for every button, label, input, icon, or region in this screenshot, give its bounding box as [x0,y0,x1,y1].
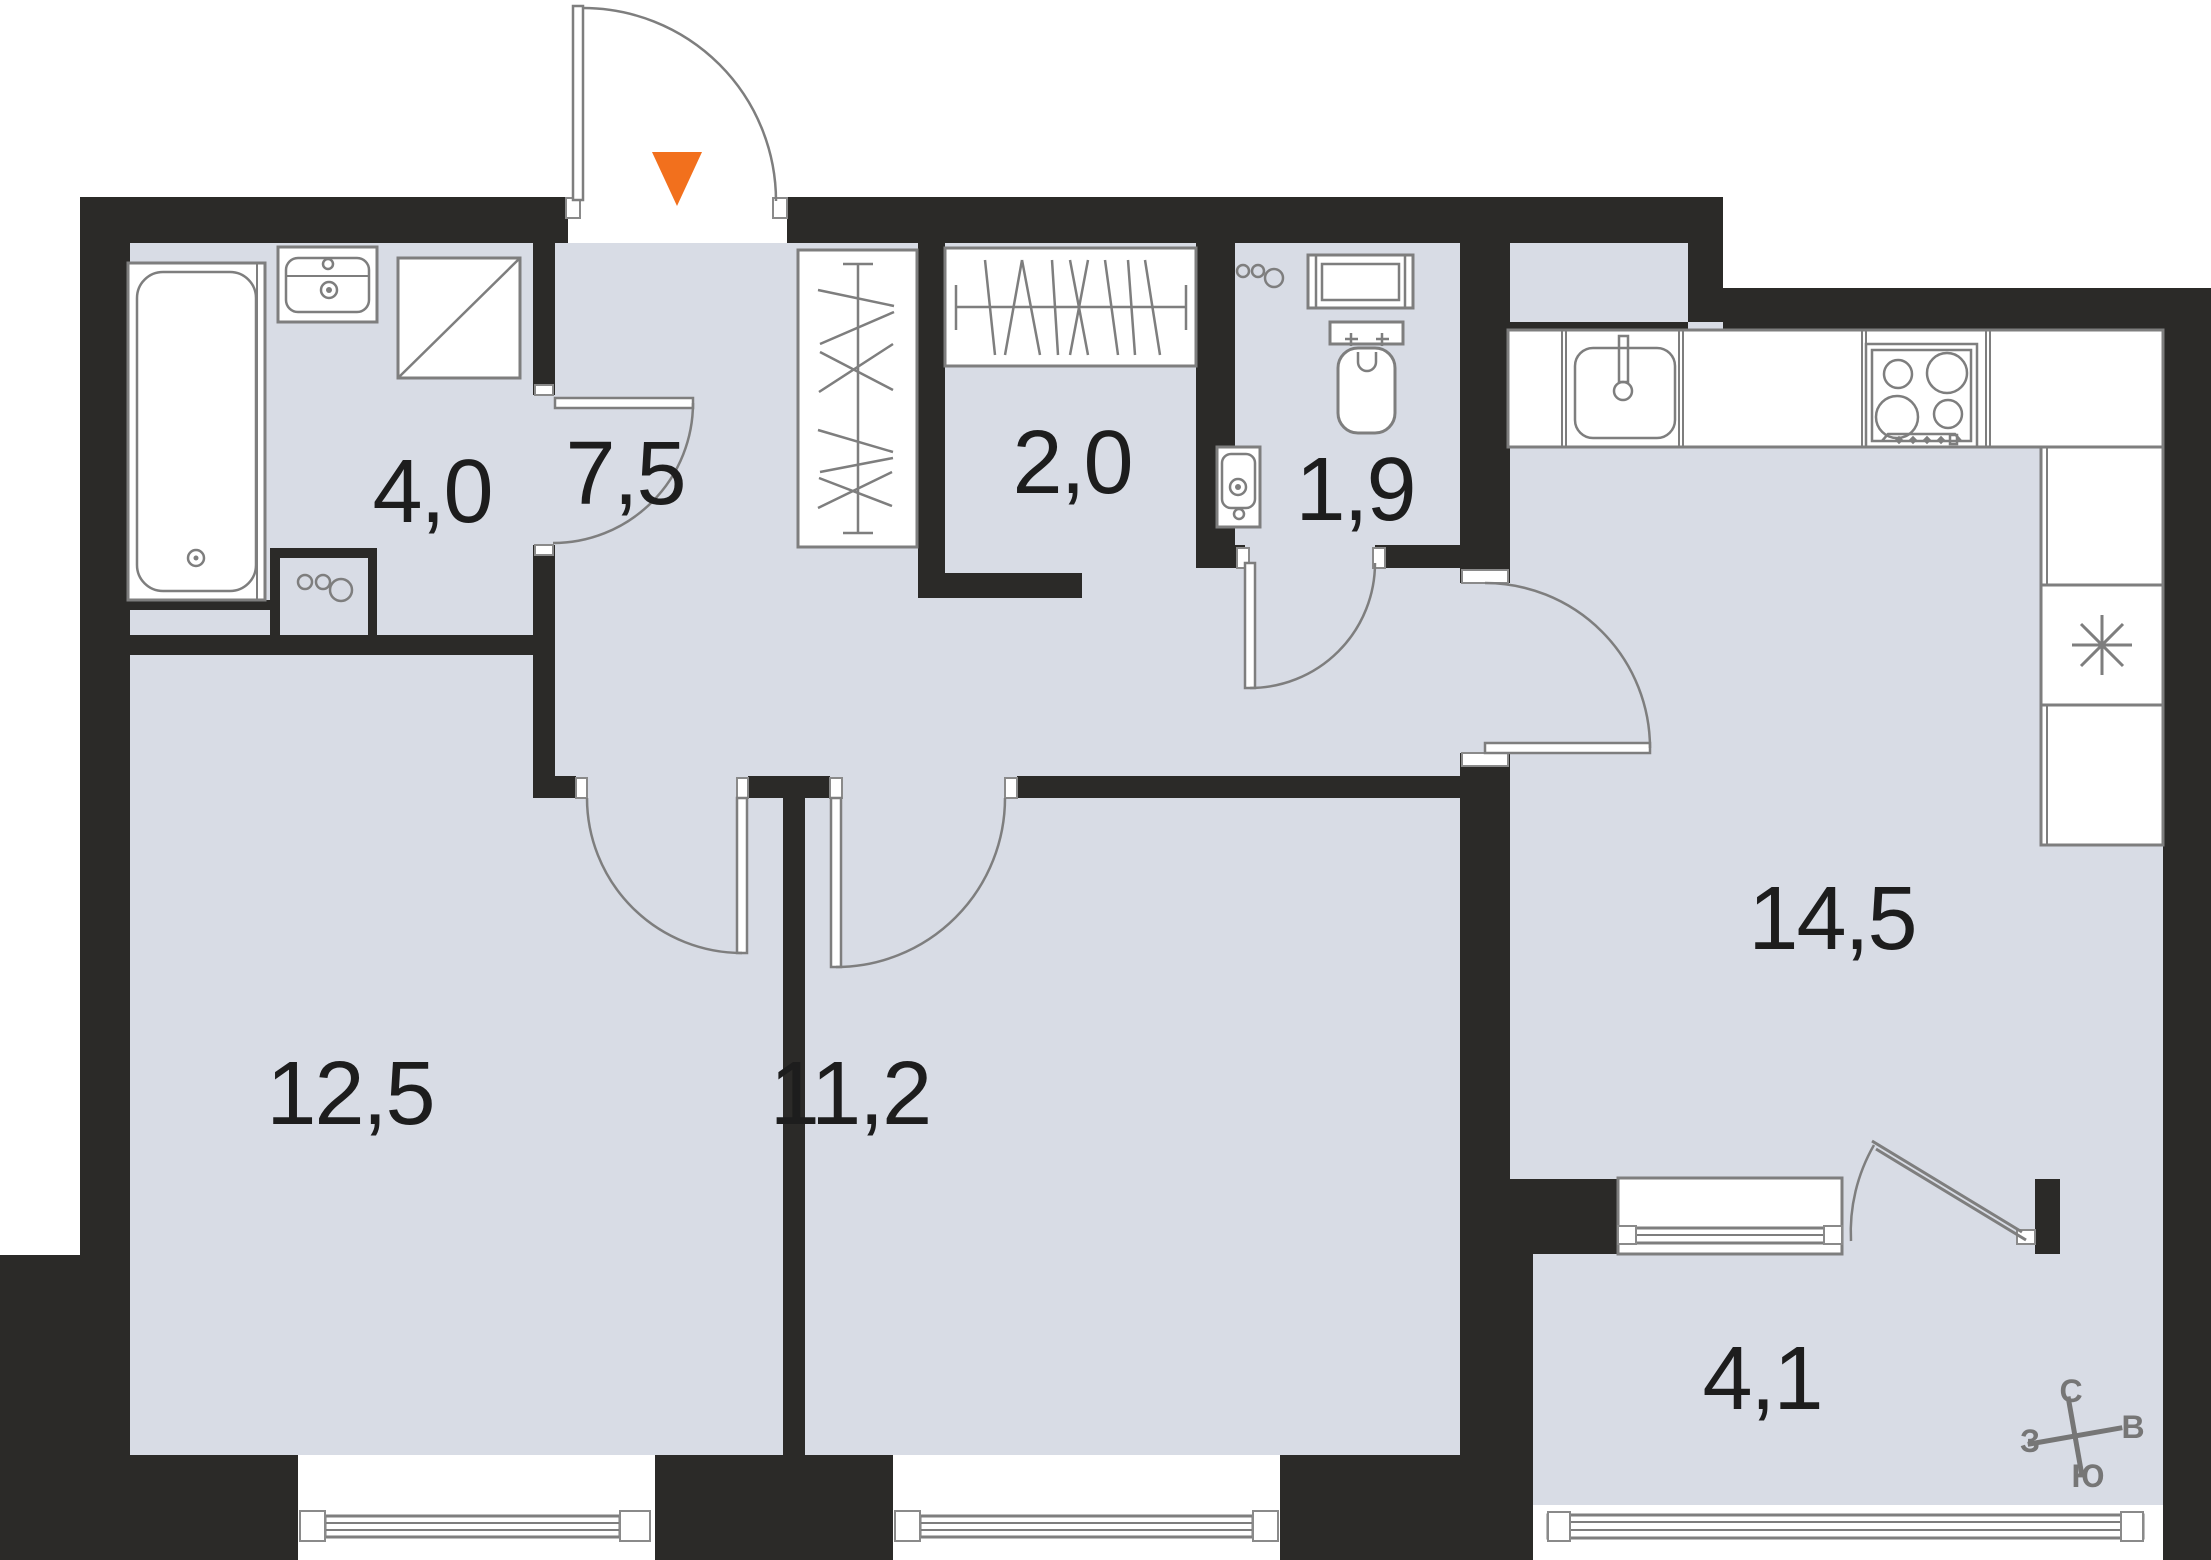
wc-basin-icon [1217,447,1260,527]
room-label-wc: 1,9 [1295,440,1414,540]
toilet-icon [1330,322,1403,433]
room-label-closet: 2,0 [1012,413,1131,513]
entrance-marker-icon [652,152,702,206]
room-label-hallway: 7,5 [565,424,684,524]
towel-radiator-icon [1308,255,1413,308]
window-bedroom-1 [298,1455,655,1560]
bathtub-icon [128,263,265,600]
window-bedroom-2 [893,1455,1280,1560]
wardrobe-icon [798,250,917,547]
kitchen-tall-units [2041,447,2163,845]
kitchen-counter [1508,330,2163,447]
fridge-icon [2041,585,2163,705]
bath-sink-icon [278,247,377,322]
room-label-kitchen: 14,5 [1748,869,1915,969]
floorplan: 4,0 2,0 1,9 7,5 12,5 11,2 14,5 4,1 С В З… [0,0,2211,1560]
compass-north: С [2059,1373,2082,1409]
window-kitchen-balcony [1618,1178,1842,1254]
compass-south: Ю [2072,1458,2105,1494]
washing-machine-icon [398,258,520,378]
room-label-bedroom-2: 11,2 [770,1044,931,1144]
floorplan-canvas: 4,0 2,0 1,9 7,5 12,5 11,2 14,5 4,1 С В З… [0,0,2211,1560]
closet-rail-icon [945,248,1196,366]
compass-west: З [2020,1423,2040,1459]
room-label-bedroom-1: 12,5 [266,1044,433,1144]
window-balcony-glazing [1533,1505,2163,1560]
room-label-bathroom: 4,0 [372,442,491,542]
room-label-balcony: 4,1 [1702,1329,1821,1429]
compass-east: В [2121,1409,2144,1445]
